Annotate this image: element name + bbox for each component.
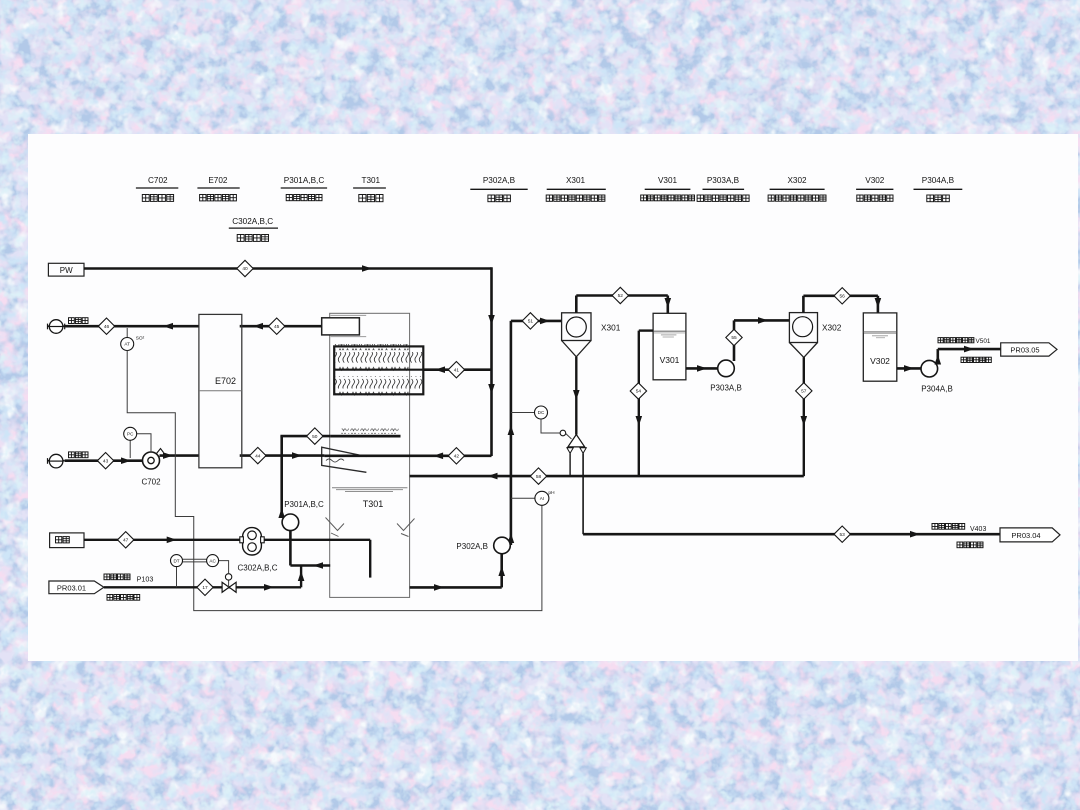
svg-text:P303A,B: P303A,B bbox=[710, 384, 742, 393]
svg-text:PR03.05: PR03.05 bbox=[1010, 345, 1039, 354]
svg-text:57: 57 bbox=[801, 389, 807, 395]
svg-text:P303A,B: P303A,B bbox=[707, 176, 740, 185]
svg-text:44: 44 bbox=[255, 453, 261, 459]
svg-text:PR03.04: PR03.04 bbox=[1011, 531, 1040, 540]
svg-text:T301: T301 bbox=[361, 176, 380, 185]
svg-text:V501: V501 bbox=[976, 338, 991, 345]
svg-text:C702: C702 bbox=[148, 176, 168, 185]
svg-text:AT: AT bbox=[124, 342, 130, 347]
svg-text:50: 50 bbox=[312, 434, 318, 440]
svg-text:V403: V403 bbox=[970, 526, 986, 533]
svg-text:40: 40 bbox=[242, 266, 248, 272]
svg-text:pH: pH bbox=[548, 490, 555, 496]
svg-text:SO²: SO² bbox=[136, 336, 145, 342]
svg-text:C702: C702 bbox=[141, 478, 161, 487]
svg-text:P304A,B: P304A,B bbox=[921, 385, 953, 394]
svg-text:E702: E702 bbox=[208, 176, 228, 185]
svg-text:V301: V301 bbox=[660, 355, 680, 365]
svg-text:PR03.01: PR03.01 bbox=[57, 583, 86, 592]
svg-text:P304A,B: P304A,B bbox=[922, 176, 955, 185]
svg-text:PC: PC bbox=[127, 431, 134, 436]
svg-text:54: 54 bbox=[636, 389, 642, 395]
svg-text:E702: E702 bbox=[215, 376, 236, 386]
svg-text:X302: X302 bbox=[787, 176, 807, 185]
svg-text:56: 56 bbox=[840, 294, 846, 300]
svg-text:58: 58 bbox=[536, 474, 542, 480]
svg-text:C302A,B,C: C302A,B,C bbox=[232, 217, 273, 226]
svg-text:X301: X301 bbox=[566, 176, 586, 185]
svg-text:41: 41 bbox=[454, 367, 460, 373]
svg-text:X301: X301 bbox=[601, 323, 621, 333]
svg-text:X302: X302 bbox=[822, 323, 842, 333]
svg-text:52: 52 bbox=[618, 293, 624, 299]
svg-text:V301: V301 bbox=[658, 176, 678, 185]
svg-text:DC: DC bbox=[538, 410, 545, 415]
svg-text:43: 43 bbox=[103, 458, 109, 464]
svg-text:V302: V302 bbox=[865, 176, 885, 185]
svg-text:42: 42 bbox=[454, 454, 460, 460]
svg-text:P301A,B,C: P301A,B,C bbox=[284, 176, 325, 185]
svg-text:AC: AC bbox=[209, 558, 216, 563]
svg-text:53: 53 bbox=[840, 532, 846, 538]
svg-text:51: 51 bbox=[528, 319, 534, 325]
svg-text:55: 55 bbox=[731, 335, 737, 341]
svg-text:PW: PW bbox=[60, 266, 73, 275]
svg-text:C302A,B,C: C302A,B,C bbox=[237, 564, 277, 573]
svg-text:45: 45 bbox=[274, 324, 280, 330]
svg-text:P302A,B: P302A,B bbox=[456, 542, 488, 551]
svg-text:46: 46 bbox=[104, 324, 110, 330]
svg-text:P302A,B: P302A,B bbox=[483, 176, 516, 185]
svg-text:47: 47 bbox=[123, 538, 129, 544]
svg-text:P301A,B,C: P301A,B,C bbox=[284, 500, 324, 509]
svg-text:DT: DT bbox=[173, 558, 179, 563]
svg-text:V302: V302 bbox=[870, 356, 890, 366]
svg-text:T301: T301 bbox=[363, 499, 384, 509]
svg-text:P103: P103 bbox=[137, 575, 154, 584]
svg-text:AI: AI bbox=[540, 496, 544, 501]
svg-text:17: 17 bbox=[202, 585, 208, 591]
